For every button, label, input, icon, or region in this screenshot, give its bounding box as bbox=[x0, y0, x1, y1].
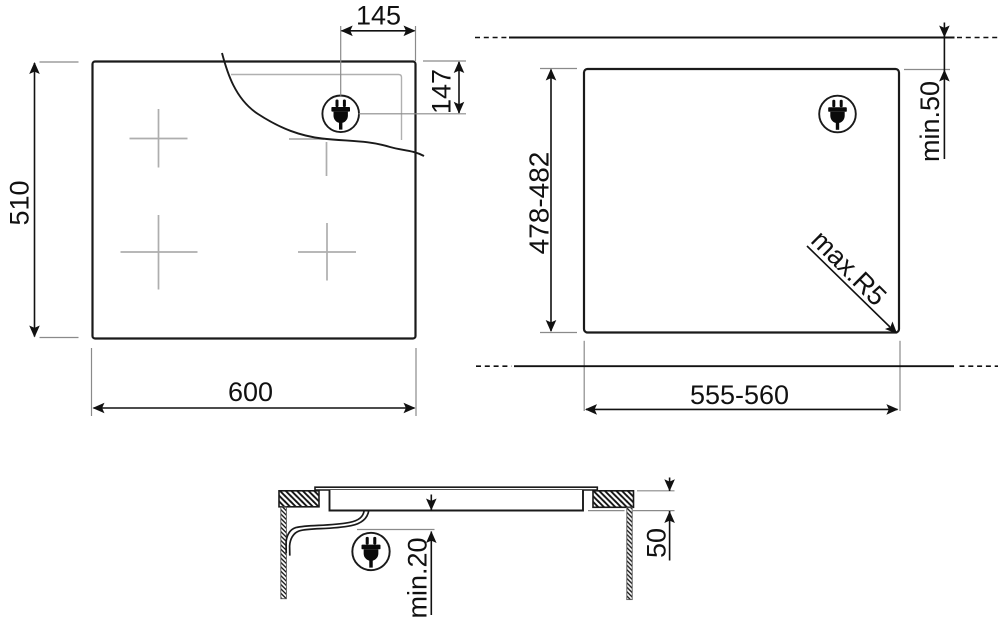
svg-text:145: 145 bbox=[356, 1, 401, 31]
svg-text:555-560: 555-560 bbox=[690, 380, 789, 410]
svg-text:147: 147 bbox=[427, 69, 457, 114]
svg-text:600: 600 bbox=[228, 377, 273, 407]
svg-text:510: 510 bbox=[5, 180, 35, 225]
svg-text:478-482: 478-482 bbox=[524, 152, 555, 255]
svg-text:min.20: min.20 bbox=[403, 537, 433, 618]
svg-text:min.50: min.50 bbox=[915, 81, 945, 162]
svg-text:50: 50 bbox=[642, 528, 672, 558]
